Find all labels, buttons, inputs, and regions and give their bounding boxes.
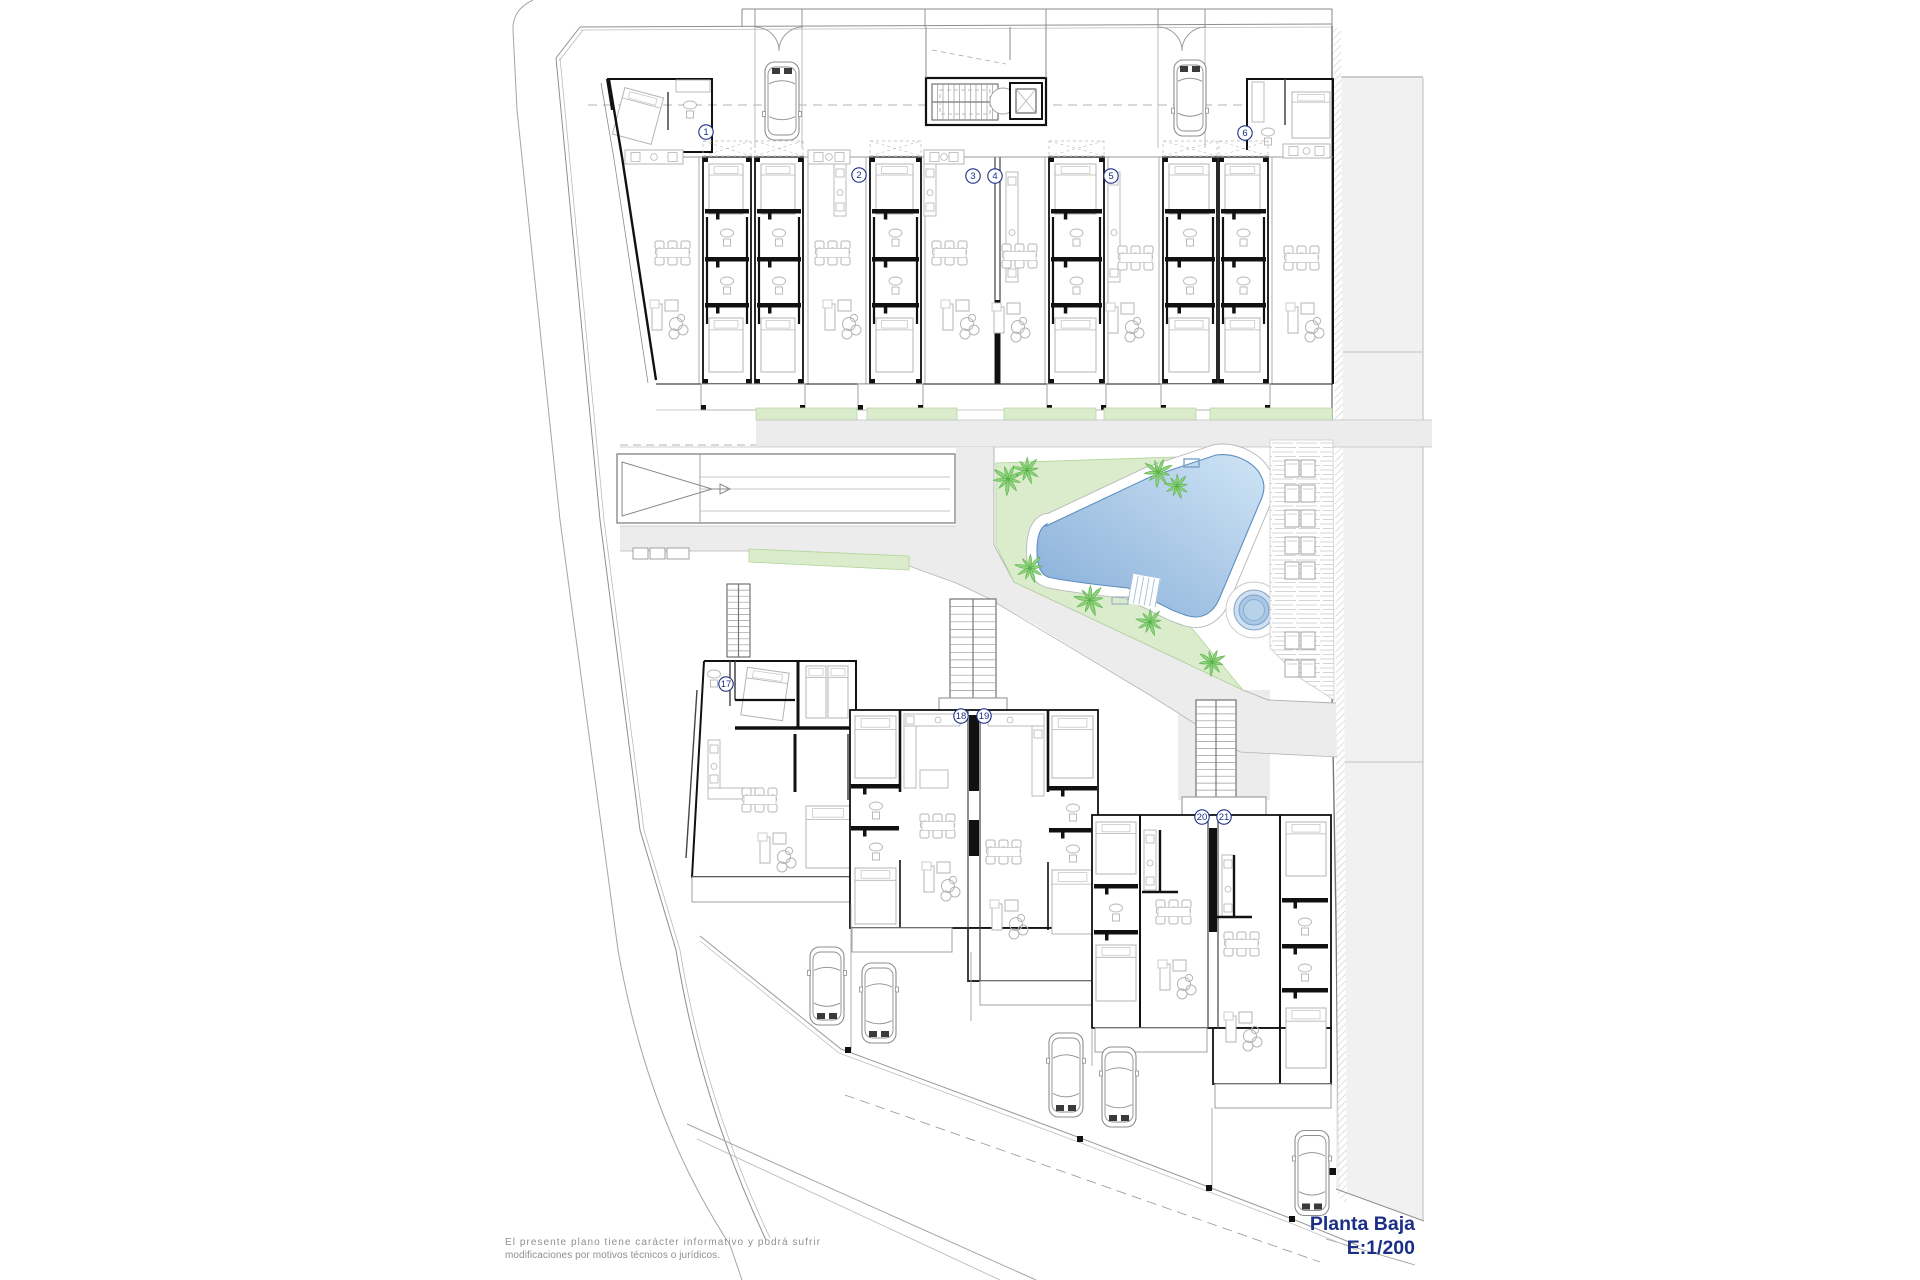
svg-text:modificaciones por motivos téc: modificaciones por motivos técnicos o ju… [505, 1250, 720, 1261]
svg-text:El presente plano tiene caráct: El presente plano tiene carácter informa… [505, 1237, 821, 1248]
svg-text:17: 17 [721, 679, 732, 690]
svg-text:6: 6 [1242, 128, 1247, 139]
svg-text:3: 3 [970, 171, 975, 182]
svg-text:1: 1 [703, 127, 708, 138]
svg-text:21: 21 [1219, 812, 1230, 823]
svg-text:2: 2 [856, 170, 861, 181]
svg-text:E:1/200: E:1/200 [1347, 1237, 1415, 1259]
svg-text:Planta Baja: Planta Baja [1310, 1213, 1415, 1235]
svg-text:5: 5 [1108, 171, 1113, 182]
svg-text:4: 4 [992, 171, 997, 182]
svg-text:18: 18 [956, 711, 967, 722]
svg-text:20: 20 [1197, 812, 1208, 823]
svg-text:19: 19 [979, 711, 990, 722]
